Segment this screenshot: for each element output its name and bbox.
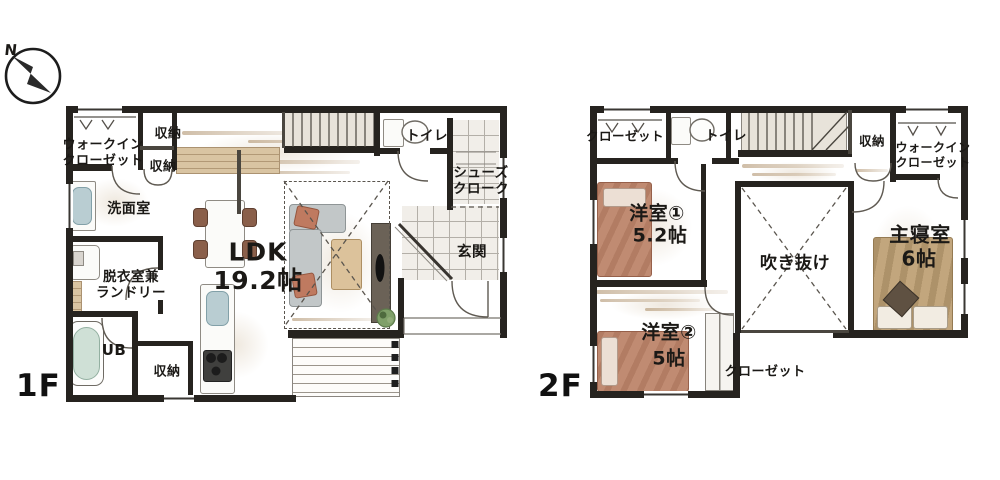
pillow-master (913, 306, 948, 329)
window (590, 346, 597, 382)
room-label-room2-size: 5帖 (652, 344, 685, 371)
wall (136, 341, 192, 346)
room-label-closet-top: クローゼット (586, 126, 664, 145)
wall (741, 330, 849, 333)
room-label-closet-bottom: クローゼット (724, 361, 805, 380)
window (604, 106, 650, 113)
wood-streak (752, 173, 836, 176)
room-label-void: 吹き抜け (760, 249, 830, 274)
window (78, 106, 122, 113)
wall (66, 236, 162, 242)
wall (398, 278, 404, 338)
window (906, 106, 948, 113)
room-label-wic2-line2: クローゼット (895, 154, 970, 171)
room-label-room2-name: 洋室② (641, 318, 697, 345)
wall (158, 300, 163, 314)
toilet-tank-1f (383, 119, 404, 147)
wall (66, 106, 507, 113)
room-label-laundry-line2: ランドリー (96, 281, 166, 301)
wall (188, 341, 193, 402)
room-label-ldk-size: 19.2帖 (213, 261, 302, 297)
wall (140, 146, 174, 150)
window (590, 200, 597, 244)
window (500, 238, 507, 272)
window (164, 395, 194, 402)
wall (666, 106, 671, 164)
wood-streak (600, 299, 700, 302)
floor-plan-canvas: N (0, 0, 1000, 480)
wall (848, 181, 854, 333)
wall (701, 164, 706, 287)
wall (738, 150, 852, 157)
room-label-master-size: 6帖 (902, 243, 937, 272)
room-label-storage-2f: 収納 (859, 131, 885, 150)
room-label-toilet-2f: トイレ (705, 124, 747, 144)
wood-streak (742, 164, 844, 168)
wall (284, 146, 374, 153)
stairs-1f (285, 113, 373, 147)
vanity-basin (72, 187, 92, 225)
wood-streak (856, 169, 888, 172)
pillow-room2 (601, 337, 618, 386)
room-label-shoe-closet-line2: クローク (453, 177, 509, 197)
floor-label-2f: 2F (538, 368, 583, 404)
wall (288, 330, 404, 338)
stairs-2f (742, 113, 846, 150)
toilet-tank-2f (671, 117, 691, 145)
wood-streak (645, 308, 715, 311)
window (644, 391, 688, 398)
room-label-washroom: 洗面室 (107, 198, 151, 218)
dining-chair (193, 240, 208, 259)
bathtub-inner (73, 327, 100, 380)
wood-deck (292, 338, 400, 397)
wood-streak (596, 290, 728, 294)
room-label-walk-in-closet-line2: クローゼット (62, 150, 143, 169)
sideboard-cabinet (176, 147, 280, 174)
wall (590, 158, 672, 164)
wall (66, 311, 136, 317)
window (961, 220, 968, 258)
room-label-unit-bath: UB (102, 341, 127, 359)
washer-detail (73, 251, 84, 266)
window (961, 284, 968, 314)
wall (712, 158, 739, 164)
compass-north-label: N (4, 41, 19, 59)
window (66, 184, 73, 228)
wall (735, 181, 854, 187)
room-label-storage-top-a: 収納 (154, 123, 181, 142)
dining-chair (242, 208, 257, 227)
wall (237, 150, 241, 214)
wall (282, 112, 285, 148)
room-label-entrance: 玄関 (457, 241, 487, 262)
wall (735, 181, 741, 333)
wall (500, 106, 507, 338)
dining-chair (193, 208, 208, 227)
wall (848, 110, 852, 154)
floor-label-1f: 1F (16, 368, 61, 404)
kitchen-stove (203, 350, 232, 382)
wall (893, 174, 940, 180)
room-label-room1-size: 5.2帖 (633, 221, 688, 248)
wall (666, 158, 678, 164)
room-label-toilet-1f: トイレ (406, 124, 448, 144)
wall (590, 280, 707, 287)
void-projection-outline-1f (284, 181, 390, 329)
wall (374, 148, 400, 154)
room-label-storage-top-b: 収納 (149, 156, 176, 175)
wall (132, 311, 138, 402)
room-label-storage-bottom: 収納 (153, 361, 180, 380)
